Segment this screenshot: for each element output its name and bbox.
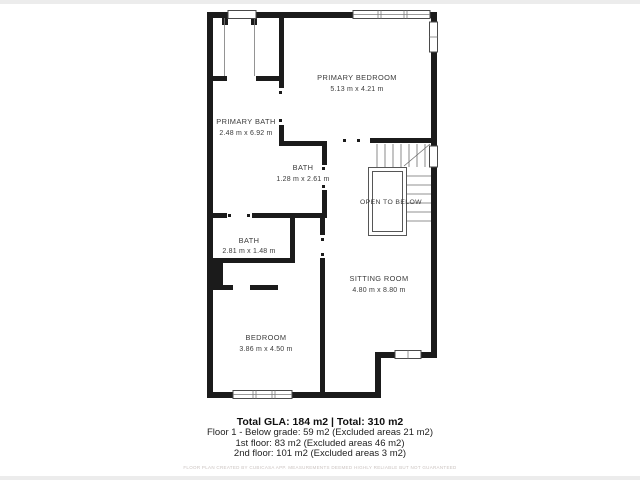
mid-wall-right bbox=[252, 213, 327, 218]
staircase bbox=[369, 144, 432, 236]
window-right-stairs bbox=[430, 146, 438, 167]
closet-lines bbox=[225, 18, 255, 76]
room-label-open-to-below: OPEN TO BELOW bbox=[360, 199, 422, 206]
door-dot bbox=[322, 185, 325, 188]
room-label-primary-bedroom: PRIMARY BEDROOM bbox=[317, 73, 397, 82]
wall-primary-divider-lower bbox=[279, 125, 284, 141]
bath-small-right-upper bbox=[322, 141, 327, 165]
bedroom-closet-stub bbox=[223, 285, 233, 290]
room-dims-sitting-room: 4.80 m x 8.80 m bbox=[352, 287, 405, 294]
wall-notch-vertical bbox=[375, 352, 381, 398]
bath-lower-bottom-wall bbox=[213, 258, 295, 263]
room-dims-bath-small: 1.28 m x 2.61 m bbox=[276, 176, 329, 183]
room-label-bath-small: BATH bbox=[293, 163, 314, 172]
closet-stub-right bbox=[251, 18, 257, 25]
room-dims-primary-bedroom: 5.13 m x 4.21 m bbox=[330, 86, 383, 93]
floor-plan-svg: PRIMARY BEDROOM 5.13 m x 4.21 m PRIMARY … bbox=[0, 0, 640, 480]
stair-treads-upper bbox=[377, 144, 425, 167]
mid-wall-left bbox=[213, 213, 227, 218]
door-dot bbox=[357, 139, 360, 142]
room-label-bedroom: BEDROOM bbox=[246, 333, 287, 342]
room-label-bath-lower: BATH bbox=[239, 236, 260, 245]
stair-top-wall bbox=[370, 138, 431, 143]
bedroom-closet-block bbox=[213, 263, 223, 290]
area-summary: Total GLA: 184 m2 | Total: 310 m2 Floor … bbox=[0, 416, 640, 470]
bedroom-sitting-divider bbox=[320, 258, 325, 392]
wall-right bbox=[431, 12, 437, 358]
closet-bottom-right bbox=[256, 76, 284, 81]
bedroom-closet-front bbox=[250, 285, 278, 290]
disclaimer-text: FLOOR PLAN CREATED BY CUBICASA APP. MEAS… bbox=[0, 465, 640, 470]
room-dims-bath-lower: 2.81 m x 1.48 m bbox=[222, 248, 275, 255]
floor3-line: 2nd floor: 101 m2 (Excluded areas 3 m2) bbox=[0, 449, 640, 460]
floor1-line: Floor 1 - Below grade: 59 m2 (Excluded a… bbox=[0, 428, 640, 439]
door-dot bbox=[279, 119, 282, 122]
door-dot bbox=[247, 214, 250, 217]
door-dot bbox=[279, 91, 282, 94]
room-label-sitting-room: SITTING ROOM bbox=[350, 274, 409, 283]
door-dot bbox=[321, 253, 324, 256]
room-dims-bedroom: 3.86 m x 4.50 m bbox=[239, 346, 292, 353]
window-top-closet bbox=[228, 11, 256, 19]
door-dot bbox=[228, 214, 231, 217]
room-label-primary-bath: PRIMARY BATH bbox=[216, 117, 275, 126]
hall-divider-upper bbox=[320, 218, 325, 235]
closet-stub-left bbox=[222, 18, 228, 25]
bath-small-top-wall bbox=[279, 141, 327, 146]
door-dot bbox=[343, 139, 346, 142]
door-dot bbox=[321, 238, 324, 241]
wall-left bbox=[207, 12, 213, 398]
door-dot bbox=[322, 167, 325, 170]
closet-bottom-left bbox=[213, 76, 227, 81]
room-dims-primary-bath: 2.48 m x 6.92 m bbox=[219, 130, 272, 137]
bath-lower-right-wall bbox=[290, 218, 295, 258]
